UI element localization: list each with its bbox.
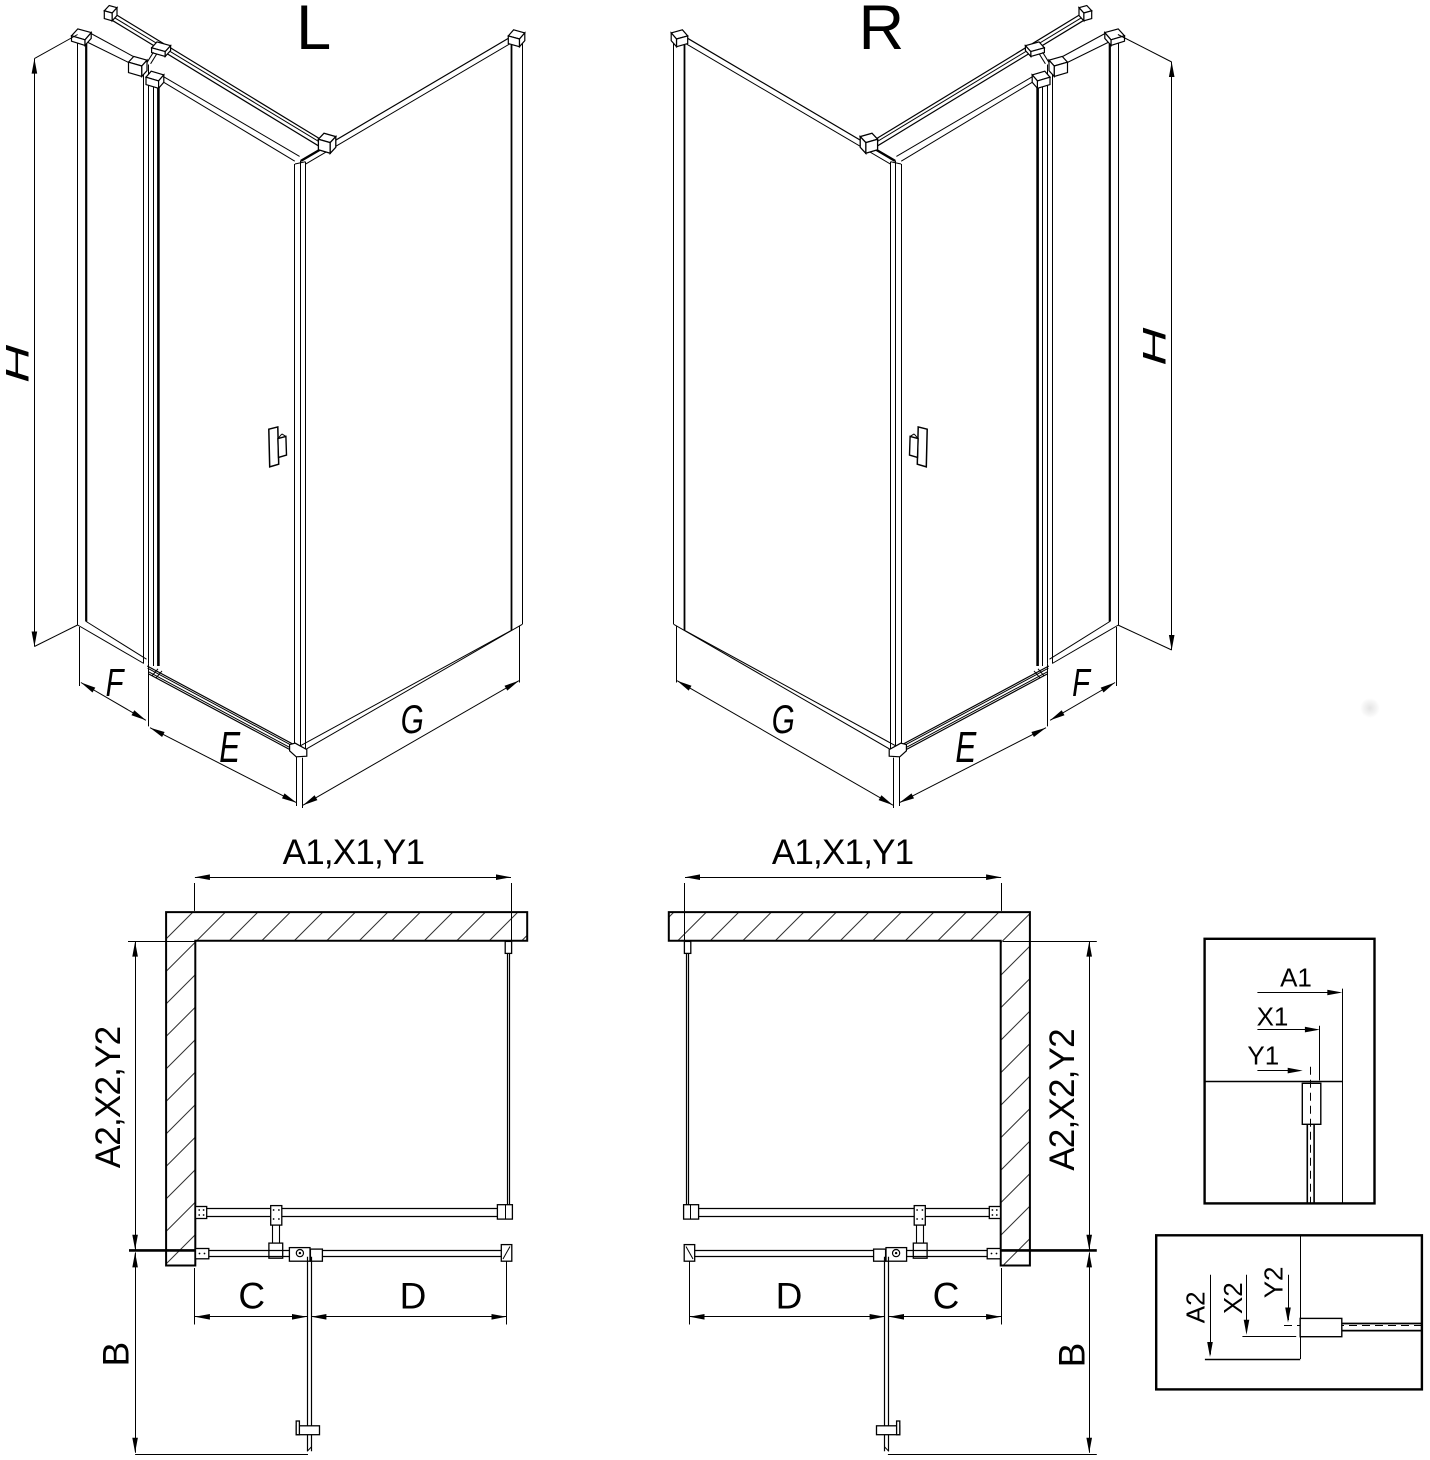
svg-text:R: R — [859, 0, 905, 63]
svg-text:D: D — [400, 1276, 427, 1317]
svg-text:L: L — [296, 0, 331, 63]
svg-text:A1,X1,Y1: A1,X1,Y1 — [283, 833, 424, 872]
svg-text:G: G — [772, 698, 795, 742]
svg-text:A2: A2 — [1180, 1291, 1210, 1323]
svg-text:E: E — [219, 724, 240, 772]
svg-text:A2,X2,Y2: A2,X2,Y2 — [1043, 1029, 1082, 1170]
svg-text:F: F — [1072, 662, 1092, 705]
svg-text:A1: A1 — [1280, 963, 1312, 993]
svg-text:C: C — [238, 1276, 265, 1317]
svg-text:A1,X1,Y1: A1,X1,Y1 — [772, 833, 913, 872]
svg-text:Y1: Y1 — [1247, 1041, 1279, 1071]
svg-text:X2: X2 — [1218, 1282, 1248, 1314]
svg-text:F: F — [106, 662, 126, 705]
svg-text:X1: X1 — [1257, 1002, 1289, 1032]
svg-text:H: H — [0, 345, 36, 383]
svg-text:B: B — [1052, 1343, 1093, 1368]
svg-text:A2,X2,Y2: A2,X2,Y2 — [89, 1027, 128, 1168]
svg-text:C: C — [933, 1276, 960, 1317]
svg-text:D: D — [776, 1276, 803, 1317]
svg-text:H: H — [1136, 327, 1173, 365]
svg-text:B: B — [96, 1342, 137, 1367]
svg-text:G: G — [401, 698, 424, 742]
svg-text:E: E — [955, 724, 976, 772]
svg-text:Y2: Y2 — [1259, 1266, 1289, 1298]
